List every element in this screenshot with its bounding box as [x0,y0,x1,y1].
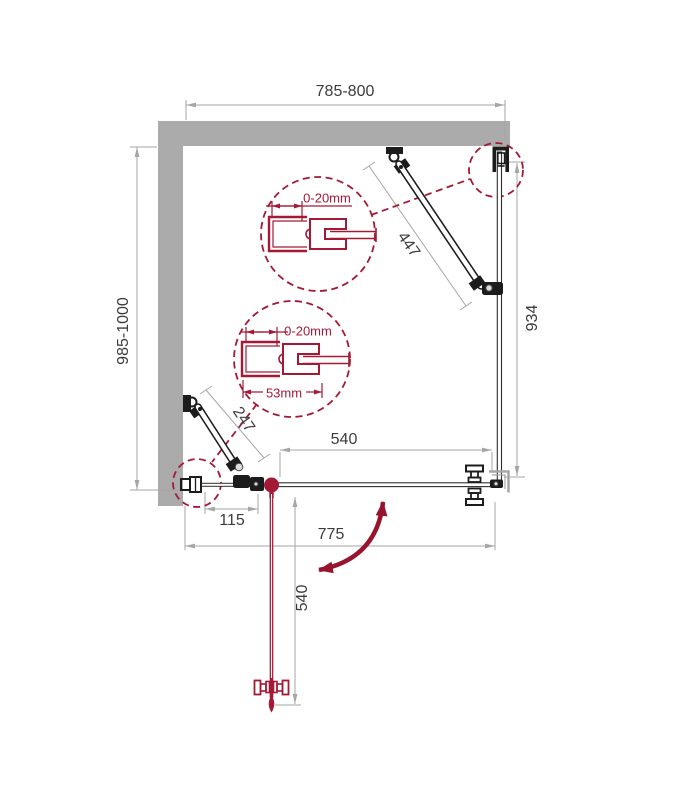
dim-door-width-label: 540 [331,432,358,448]
detail-top-gap-label: 0-20mm [303,192,351,205]
dimension-side-panel [504,162,525,477]
glass-side-panel [497,152,501,481]
detail-bottom-width-label: 53mm [266,387,302,400]
detail-bottom-gap-label: 0-20mm [284,325,332,338]
glass-door-closed [278,483,491,487]
dim-width-label: 785-800 [316,84,375,100]
wall-top [158,121,510,146]
dim-side-panel-label: 934 [525,305,541,332]
dimension-door-width [280,450,492,477]
dim-door-open-label: 540 [295,585,311,612]
wall-left [158,121,183,506]
dim-front-width-label: 775 [318,527,345,543]
corner-bracket [489,472,509,493]
dimension-bar-right [363,162,472,310]
door-open-position [255,493,289,713]
profile-section-top [266,201,376,251]
dim-depth-label: 985-1000 [116,297,132,365]
door-hinge [250,477,264,491]
dimension-hinge-offset [205,492,258,514]
dim-hinge-offset-label: 115 [219,513,245,529]
drawing-canvas [0,0,685,800]
support-bar-right [386,147,503,295]
wall-bracket-bottom-left [181,477,201,492]
technical-drawing: 785-800 985-1000 447 934 247 540 115 775… [0,0,685,800]
